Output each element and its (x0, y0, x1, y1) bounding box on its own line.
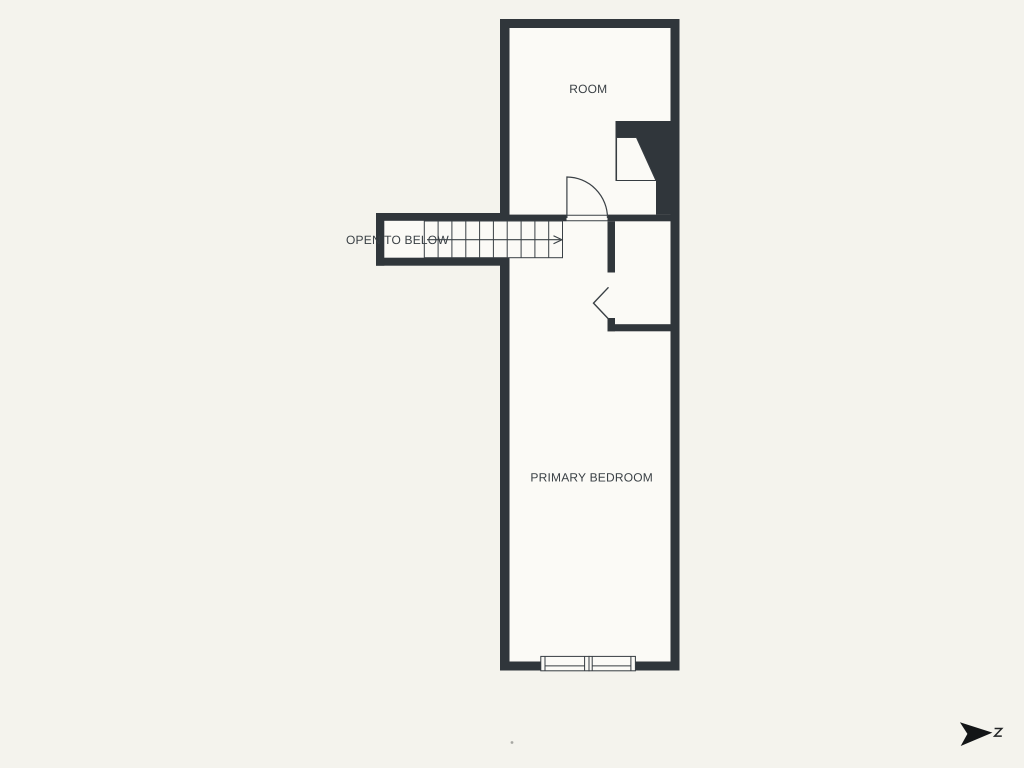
svg-text:PRIMARY BEDROOM: PRIMARY BEDROOM (530, 471, 653, 485)
svg-text:ROOM: ROOM (569, 82, 607, 96)
svg-text:OPEN TO BELOW: OPEN TO BELOW (346, 233, 449, 247)
